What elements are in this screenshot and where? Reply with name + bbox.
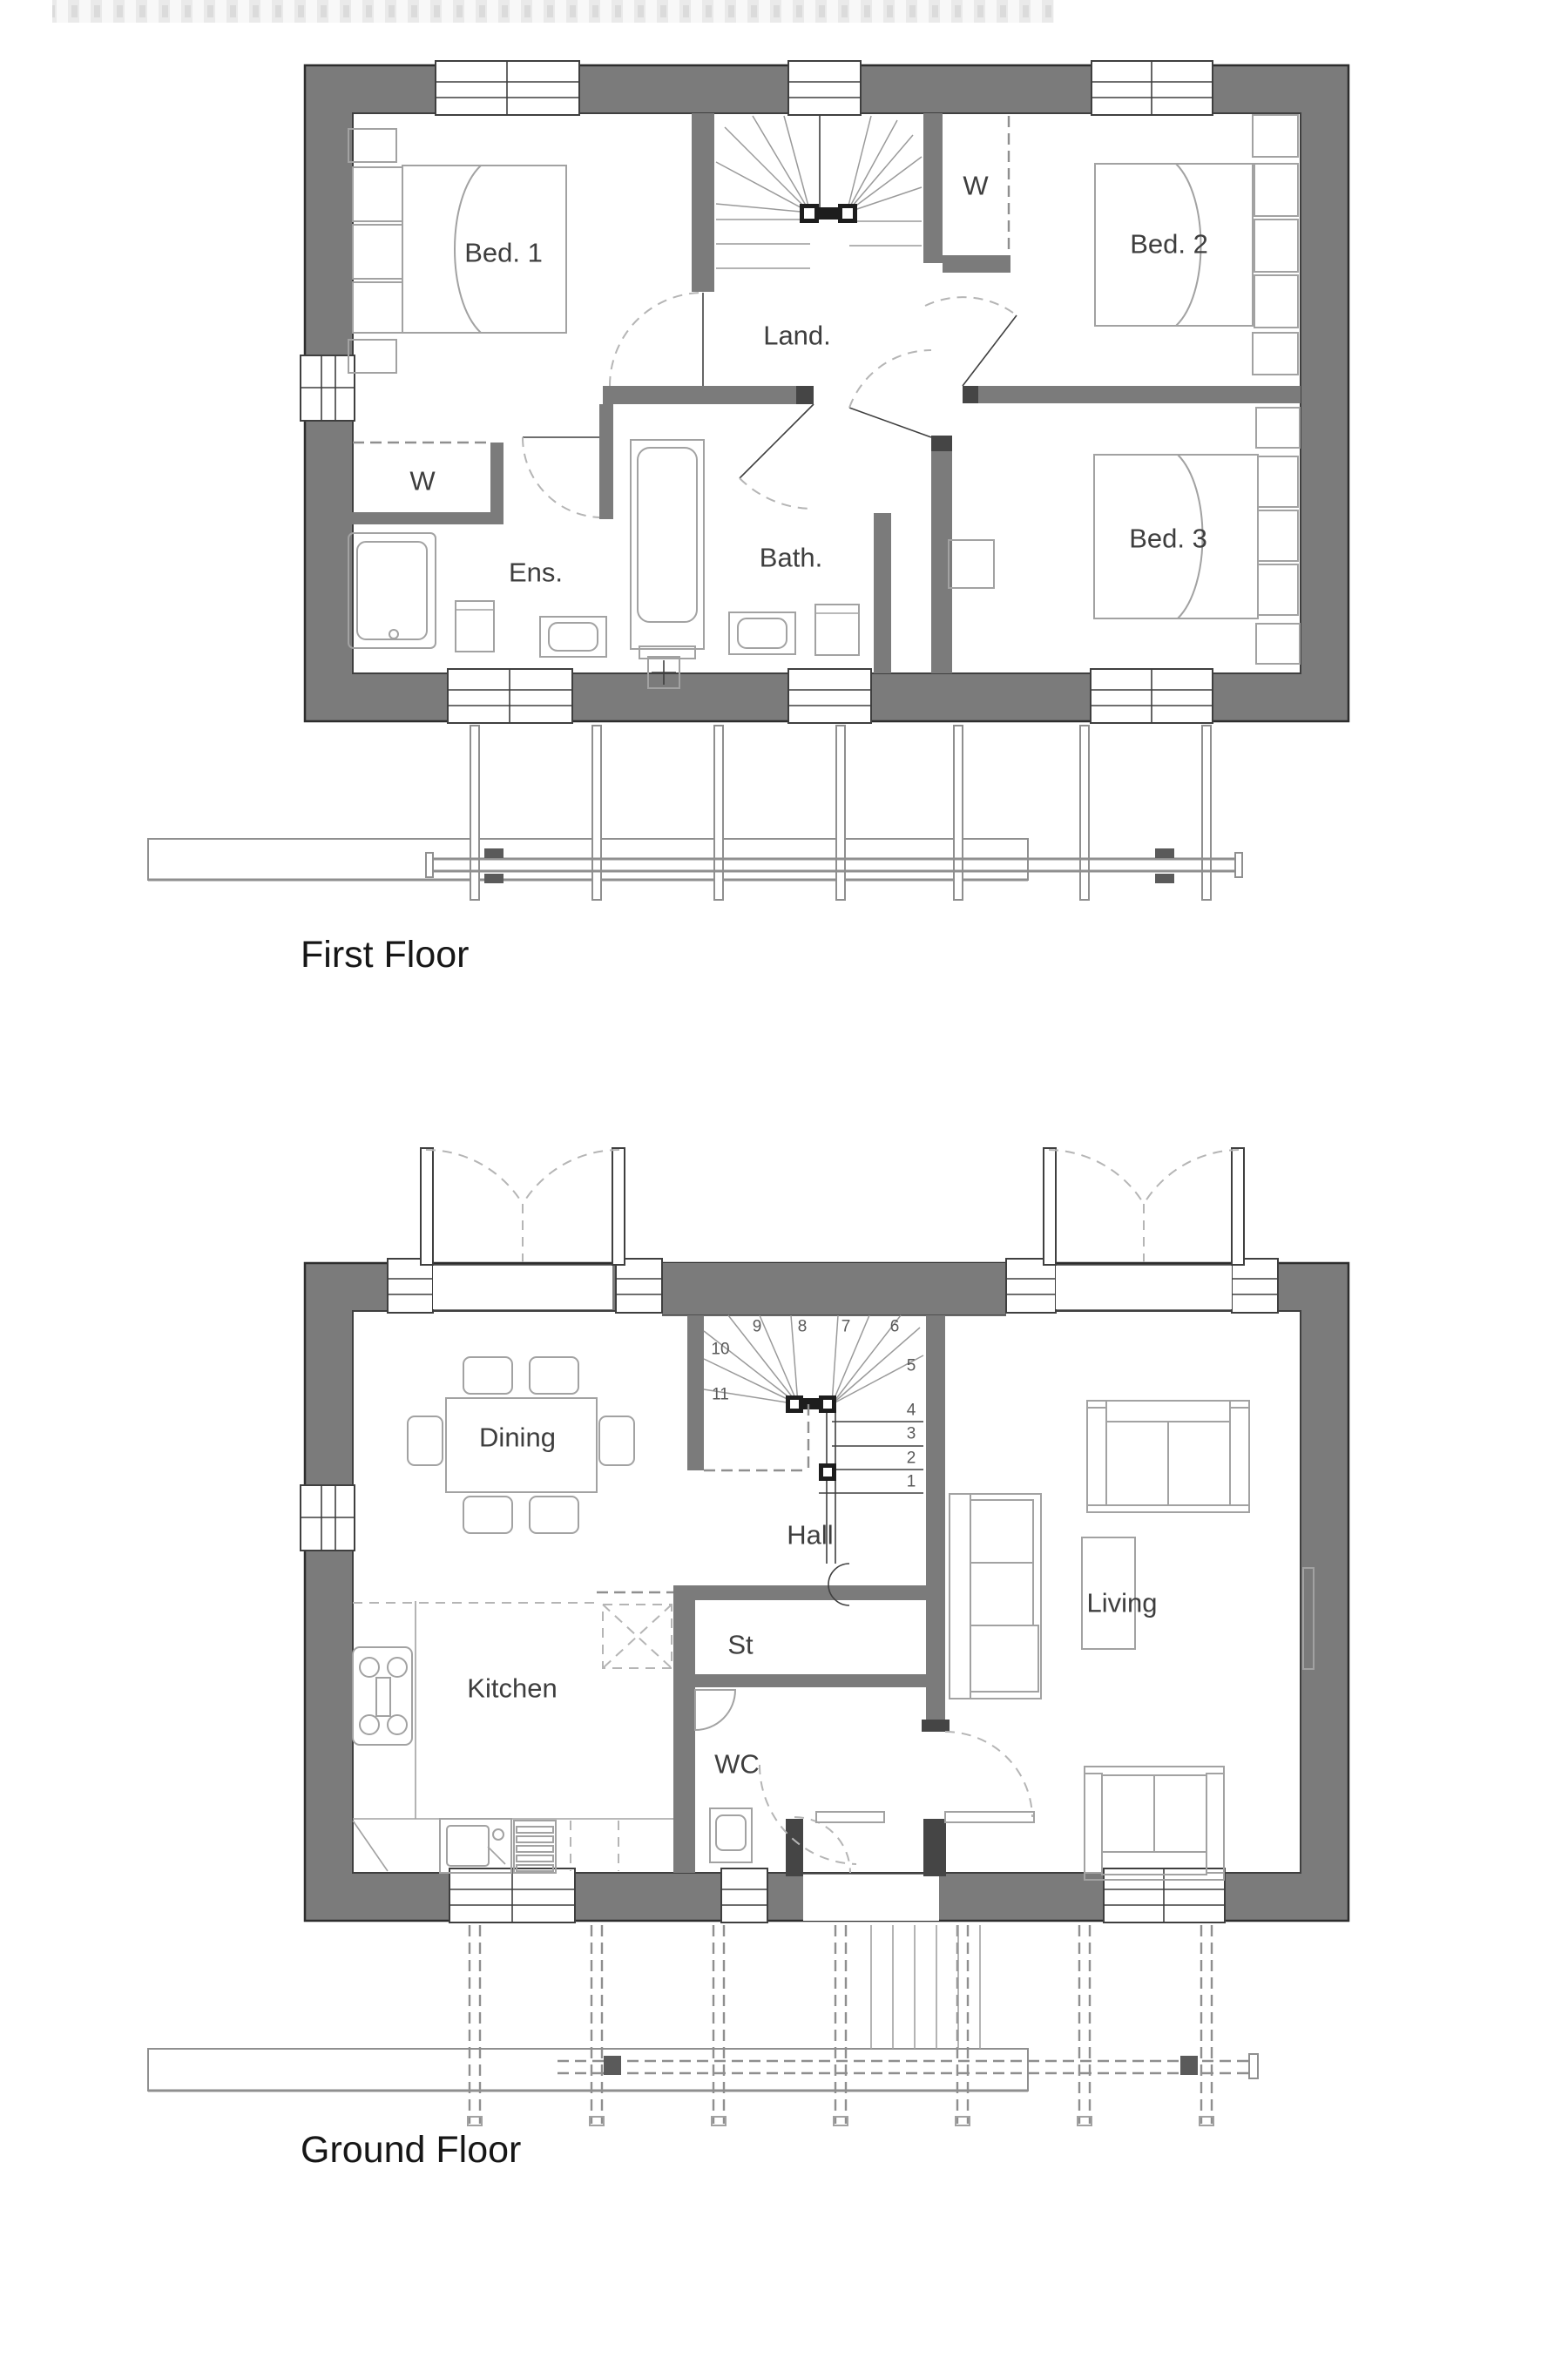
- ff-window-bath: [788, 669, 871, 723]
- gf-living-furniture: [950, 1401, 1314, 1880]
- gf-window-kitchen: [449, 1868, 575, 1922]
- ff-label-ensuite: Ens.: [509, 557, 563, 588]
- ff-label-landing: Land.: [763, 321, 831, 351]
- stair-tread-number: 8: [798, 1318, 808, 1336]
- ff-window-ensuite: [448, 669, 572, 723]
- gf-window-dining-right: [616, 1259, 662, 1313]
- gf-stairs: 1 2 3 4 5 6 7 8 9 10 11: [704, 1315, 923, 1605]
- first-floor-title: First Floor: [301, 934, 470, 976]
- gf-window-dining-left: [388, 1259, 433, 1313]
- stair-tread-number: 2: [907, 1449, 916, 1468]
- stair-tread-number: 11: [712, 1386, 729, 1404]
- gf-window-dining-side: [301, 1485, 355, 1551]
- ff-label-bed3: Bed. 3: [1129, 524, 1207, 554]
- gf-label-living: Living: [1087, 1588, 1158, 1618]
- stair-tread-number: 10: [711, 1341, 729, 1359]
- gf-interior-walls: [597, 1315, 950, 1873]
- ground-floor-plan: 1 2 3 4 5 6 7 8 9 10 11: [148, 1148, 1348, 2171]
- stair-tread-number: 3: [907, 1425, 916, 1443]
- ff-label-bed2: Bed. 2: [1130, 229, 1208, 260]
- gf-french-door-dining: [421, 1148, 625, 1309]
- first-floor-plan: Bed. 1 Bed. 2 Bed. 3 Land. Bath. Ens. W …: [148, 61, 1348, 976]
- ff-label-bath: Bath.: [760, 543, 822, 573]
- stair-tread-number: 9: [753, 1318, 762, 1336]
- gf-window-living-right: [1232, 1259, 1278, 1313]
- cropped-artifact-strip: [52, 0, 1054, 23]
- gf-label-kitchen: Kitchen: [467, 1673, 557, 1704]
- gf-window-living-bottom: [1104, 1868, 1225, 1922]
- gf-front-door: [786, 1817, 946, 1921]
- ground-floor-title: Ground Floor: [301, 2129, 521, 2171]
- ff-ensuite-fixtures: [348, 533, 606, 657]
- stair-tread-number: 7: [841, 1318, 851, 1336]
- stair-tread-number: 1: [907, 1473, 916, 1491]
- floorplan-page: Bed. 1 Bed. 2 Bed. 3 Land. Bath. Ens. W …: [0, 0, 1568, 2365]
- ff-window-bed1: [436, 61, 579, 115]
- gf-deck: [148, 1925, 1258, 2125]
- ff-bath-fixtures: [631, 440, 859, 688]
- floorplan-drawing: Bed. 1 Bed. 2 Bed. 3 Land. Bath. Ens. W …: [0, 0, 1568, 2365]
- ff-window-bed3: [1091, 669, 1213, 723]
- ff-bed3-furniture: [949, 408, 1300, 664]
- gf-kitchen-fixtures: [353, 1601, 673, 1873]
- ff-stairs: [716, 116, 922, 268]
- gf-window-living-left: [1006, 1259, 1056, 1313]
- stair-tread-number: 5: [907, 1357, 916, 1375]
- ff-window-bed2: [1092, 61, 1213, 115]
- gf-label-dining: Dining: [479, 1422, 556, 1453]
- ff-label-wardrobe1: W: [409, 466, 436, 497]
- stair-tread-number: 4: [907, 1402, 916, 1420]
- gf-window-wc: [721, 1868, 767, 1922]
- ff-label-bed1: Bed. 1: [464, 238, 543, 268]
- ff-window-stairs: [788, 61, 861, 115]
- gf-label-store: St: [727, 1630, 754, 1660]
- stair-tread-number: 6: [890, 1318, 900, 1336]
- gf-label-hall: Hall: [787, 1520, 833, 1551]
- ff-deck: [148, 726, 1242, 900]
- sink-icon: [440, 1819, 556, 1873]
- ff-window-bed1-side: [301, 355, 355, 421]
- gf-label-wc: WC: [714, 1749, 760, 1780]
- gf-french-door-living: [1044, 1148, 1244, 1309]
- ff-label-wardrobe2: W: [963, 171, 989, 201]
